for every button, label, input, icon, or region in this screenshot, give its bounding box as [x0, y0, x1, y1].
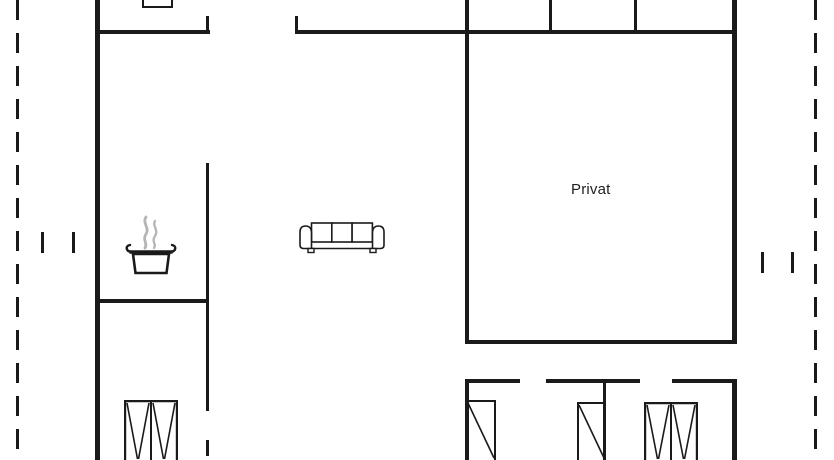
wardrobe-single-icon [466, 400, 496, 460]
wall-partition-top-2 [634, 0, 637, 34]
boundary-dashed-left [16, 0, 19, 460]
marker-tick-left-2 [72, 232, 75, 253]
floor-plan: Privat [0, 0, 834, 460]
sofa-foot [308, 249, 314, 253]
wall-kitchen-bottom [95, 299, 209, 303]
wall-privat-bottom [465, 340, 737, 344]
wall-top-main [295, 30, 737, 34]
sofa-cushion [332, 223, 352, 242]
door-jamb-entrance-left [206, 16, 209, 34]
room-label-privat: Privat [571, 181, 611, 198]
marker-tick-right-1 [761, 252, 764, 273]
wall-exterior-right-upper [732, 0, 737, 344]
wall-bedrooms-top-3 [672, 379, 737, 383]
sofa-foot [370, 249, 376, 253]
top-fixture [142, 0, 173, 8]
marker-tick-left-1 [41, 232, 44, 253]
cooking-pot-icon [122, 214, 180, 276]
sofa-arm-right [373, 226, 385, 249]
wall-central-privat-left [465, 0, 469, 344]
sofa-cushion [352, 223, 372, 242]
wall-exterior-left [95, 0, 100, 460]
wall-kitchen-right [206, 163, 209, 411]
sofa-arm-left [300, 226, 312, 249]
pot-body [133, 254, 169, 273]
wall-partition-top-1 [549, 0, 552, 34]
wardrobe-double-icon [124, 400, 178, 460]
steam-icon [145, 217, 157, 248]
wall-bedrooms-top-2 [546, 379, 640, 383]
boundary-dashed-right [814, 0, 817, 460]
wall-exterior-right-lower [732, 379, 737, 460]
wall-top-kitchen [95, 30, 210, 34]
wall-bedrooms-top-1 [465, 379, 520, 383]
sofa-icon [297, 221, 387, 254]
wardrobe-double-icon [644, 402, 698, 460]
wardrobe-single-icon [577, 402, 606, 460]
sofa-cushion [312, 223, 332, 242]
wall-kitchen-right-dash [206, 440, 209, 456]
marker-tick-right-2 [791, 252, 794, 273]
